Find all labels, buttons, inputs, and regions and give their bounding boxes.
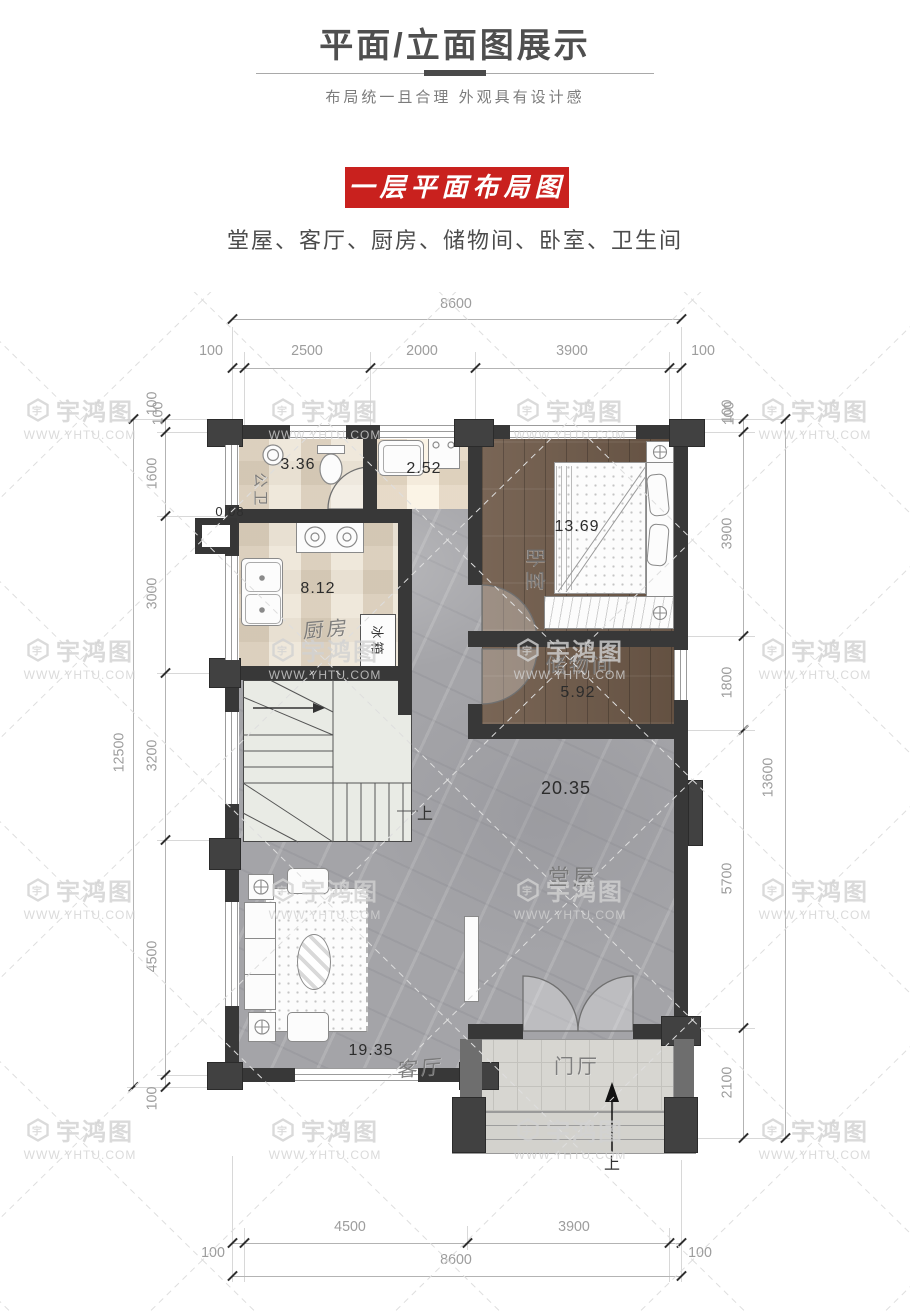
yhtu-logo-icon: 宇 (271, 398, 295, 422)
dim-line (133, 419, 134, 1087)
tv-console (464, 916, 479, 1002)
extension-line (681, 1160, 682, 1282)
dim-top-seg: 100 (670, 342, 737, 359)
page: 平面/立面图展示 布局统一且合理 外观具有设计感 一层平面布局图 堂屋、客厅、厨… (0, 0, 910, 1313)
wall-bath-laundry (363, 439, 377, 509)
watermark-brand: 宇鸿图 (791, 392, 869, 427)
dim-left-seg: 100 (144, 1065, 161, 1132)
page-subtitle: 布局统一且合理 外观具有设计感 (0, 86, 910, 107)
yhtu-logo-icon: 宇 (271, 1118, 295, 1142)
wall-bedroom-left (468, 439, 482, 585)
svg-text:宇: 宇 (32, 884, 44, 897)
wall-storage-left (468, 704, 482, 724)
dim-line (232, 368, 682, 369)
dim-right-seg: 5700 (719, 845, 736, 912)
svg-text:宇: 宇 (277, 404, 289, 417)
area-storage: 5.92 (538, 684, 618, 702)
svg-text:宇: 宇 (767, 644, 779, 657)
dim-bottom-right: 100 (667, 1244, 734, 1261)
side-table (248, 1012, 276, 1042)
wall-pier (209, 838, 241, 870)
stairs-area (243, 680, 412, 842)
svg-text:宇: 宇 (767, 884, 779, 897)
label-stairs-up: 上 (410, 800, 440, 824)
svg-text:宇: 宇 (32, 404, 44, 417)
watermark-url: WWW.YHTU.COM (0, 1148, 165, 1162)
label-entry-up: 上 (597, 1150, 627, 1174)
watermark: 宇宇鸿图WWW.YHTU.COM (730, 392, 900, 442)
extension-line (688, 636, 755, 637)
wall-storage-bottom (468, 724, 688, 739)
watermark-url: WWW.YHTU.COM (0, 428, 165, 442)
watermark-url: WWW.YHTU.COM (0, 908, 165, 922)
watermark: 宇宇鸿图WWW.YHTU.COM (240, 1112, 410, 1162)
sofa-cushion-line (244, 974, 276, 975)
window (510, 425, 636, 439)
sofa-cushion-line (244, 938, 276, 939)
toilet-tank (317, 445, 345, 454)
area-hall: 20.35 (526, 778, 606, 799)
window (225, 712, 239, 804)
label-storage: 储物间 (520, 649, 640, 678)
watermark: 宇宇鸿图WWW.YHTU.COM (0, 632, 165, 682)
watermark-url: WWW.YHTU.COM (240, 1148, 410, 1162)
label-bathroom: 公卫 (251, 431, 272, 551)
dim-left-seg: 1600 (144, 440, 161, 507)
side-table (248, 874, 274, 900)
dim-top-seg: 2000 (389, 342, 456, 359)
extension-line (232, 1156, 233, 1282)
column (454, 419, 494, 447)
yhtu-logo-icon: 宇 (516, 398, 540, 422)
yhtu-logo-icon: 宇 (761, 398, 785, 422)
watermark: 宇宇鸿图WWW.YHTU.COM (730, 872, 900, 922)
wall-stair-stub (398, 680, 412, 715)
stove (296, 521, 364, 553)
wall-kitchen-right (398, 516, 412, 680)
yhtu-logo-icon: 宇 (26, 638, 50, 662)
dim-right-seg: 3900 (719, 500, 736, 567)
svg-text:宇: 宇 (522, 404, 534, 417)
dim-bottom-left: 100 (180, 1244, 247, 1261)
dim-line (165, 419, 166, 1087)
dim-left-seg: 4500 (144, 923, 161, 990)
dim-top-seg: 2500 (274, 342, 341, 359)
watermark-url: WWW.YHTU.COM (730, 1148, 900, 1162)
wall-pier (688, 780, 703, 846)
extension-line (669, 352, 670, 425)
porch-column (664, 1097, 698, 1153)
dim-left-seg: 3200 (144, 722, 161, 789)
corner-column (207, 1062, 243, 1090)
watermark: 宇宇鸿图WWW.YHTU.COM (0, 392, 165, 442)
dim-left-seg: 3000 (144, 560, 161, 627)
wall-hall-bottom (468, 1024, 523, 1039)
yhtu-logo-icon: 宇 (761, 638, 785, 662)
area-flue: 0.08 (190, 504, 270, 519)
dim-bottom-overall: 8600 (423, 1251, 490, 1268)
armchair (287, 1012, 329, 1042)
label-fridge: 冰箱 (369, 582, 388, 702)
watermark-brand: 宇鸿图 (791, 872, 869, 907)
yhtu-logo-icon: 宇 (761, 878, 785, 902)
svg-text:宇: 宇 (32, 644, 44, 657)
watermark: 宇宇鸿图WWW.YHTU.COM (0, 872, 165, 922)
watermark-brand: 宇鸿图 (56, 872, 134, 907)
window (290, 425, 346, 439)
yhtu-logo-icon: 宇 (26, 878, 50, 902)
area-kitchen: 8.12 (278, 580, 358, 598)
watermark-brand: 宇鸿图 (56, 1112, 134, 1147)
dim-top-side-left: 100 (150, 380, 167, 447)
wall-bedroom-bottom (468, 631, 688, 647)
wardrobe (544, 596, 674, 629)
watermark: 宇宇鸿图WWW.YHTU.COM (0, 1112, 165, 1162)
label-hall: 堂屋 (513, 860, 633, 892)
extension-line (700, 1028, 755, 1029)
room-list: 堂屋、客厅、厨房、储物间、卧室、卫生间 (0, 223, 910, 255)
sofa (244, 902, 276, 1010)
pillow (646, 473, 670, 517)
title-divider-accent (424, 70, 486, 76)
watermark-brand: 宇鸿图 (56, 392, 134, 427)
window (380, 425, 454, 439)
dim-line (785, 419, 786, 1138)
extension-line (467, 1226, 468, 1250)
window (225, 445, 239, 505)
dim-right-overall: 13600 (760, 744, 777, 811)
extension-line (688, 730, 755, 731)
armchair (287, 868, 329, 894)
flue-shaft (195, 518, 237, 554)
svg-text:宇: 宇 (767, 1124, 779, 1137)
porch-pilaster (674, 1039, 694, 1099)
watermark-url: WWW.YHTU.COM (0, 668, 165, 682)
yhtu-logo-icon: 宇 (26, 398, 50, 422)
porch-column (452, 1097, 486, 1153)
dim-right-seg: 2100 (719, 1049, 736, 1116)
yhtu-logo-icon: 宇 (26, 1118, 50, 1142)
window (225, 902, 239, 1006)
dim-top-side-right: 100 (721, 380, 738, 447)
watermark-url: WWW.YHTU.COM (730, 428, 900, 442)
label-bedroom: 卧室 (523, 511, 552, 631)
dim-line (232, 1243, 682, 1244)
watermark-brand: 宇鸿图 (546, 392, 624, 427)
svg-text:宇: 宇 (767, 404, 779, 417)
dim-line (232, 1276, 682, 1277)
watermark: 宇宇鸿图WWW.YHTU.COM (730, 632, 900, 682)
watermark-url: WWW.YHTU.COM (730, 668, 900, 682)
dim-top-seg: 100 (178, 342, 245, 359)
dim-line (743, 419, 744, 1138)
label-foyer: 门厅 (517, 1050, 637, 1079)
dim-left-overall: 12500 (111, 719, 128, 786)
entry-steps (452, 1112, 696, 1154)
extension-line (244, 352, 245, 425)
coffee-table (297, 934, 331, 990)
sink-basin-top (245, 562, 281, 592)
area-laundry: 2.52 (384, 460, 464, 478)
dim-line (232, 319, 682, 320)
window (674, 650, 688, 700)
svg-text:宇: 宇 (32, 1124, 44, 1137)
section-banner: 一层平面布局图 (345, 167, 569, 208)
wall-pier (209, 658, 241, 688)
watermark-brand: 宇鸿图 (301, 392, 379, 427)
pillow (646, 523, 670, 567)
dim-bottom-seg: 3900 (541, 1218, 608, 1235)
dim-bottom-seg: 4500 (317, 1218, 384, 1235)
corner-column (669, 419, 705, 447)
dim-top-overall: 8600 (423, 295, 490, 312)
watermark-brand: 宇鸿图 (791, 1112, 869, 1147)
svg-text:宇: 宇 (277, 1124, 289, 1137)
watermark-brand: 宇鸿图 (56, 632, 134, 667)
corner-column (207, 419, 243, 447)
watermark-brand: 宇鸿图 (301, 1112, 379, 1147)
watermark-brand: 宇鸿图 (791, 632, 869, 667)
dim-top-seg: 3900 (539, 342, 606, 359)
watermark: 宇宇鸿图WWW.YHTU.COM (730, 1112, 900, 1162)
window (225, 556, 239, 660)
watermark-url: WWW.YHTU.COM (730, 908, 900, 922)
page-title: 平面/立面图展示 (0, 18, 910, 67)
dim-right-seg: 1800 (719, 649, 736, 716)
